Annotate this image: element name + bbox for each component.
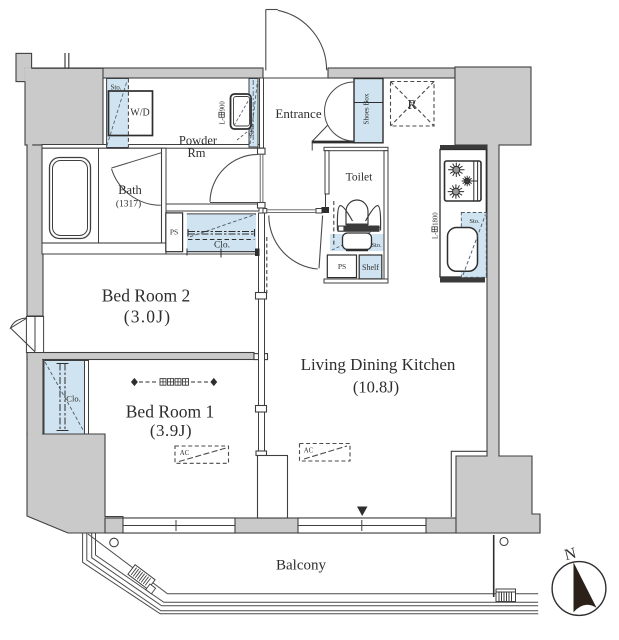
svg-text:AC: AC xyxy=(304,448,314,455)
svg-text:Entrance: Entrance xyxy=(275,106,321,121)
svg-text:1800: 1800 xyxy=(432,212,439,226)
svg-text:L-: L- xyxy=(432,232,439,239)
svg-text:Shelf: Shelf xyxy=(362,263,379,272)
svg-text:L-: L- xyxy=(219,117,226,124)
svg-text:Sto.: Sto. xyxy=(110,84,121,92)
svg-text:(3.0J): (3.0J) xyxy=(124,307,172,327)
svg-text:900: 900 xyxy=(219,101,226,112)
svg-text:Shoes Box: Shoes Box xyxy=(363,93,371,124)
svg-text:Clo.: Clo. xyxy=(214,240,230,250)
svg-text:(3.9J): (3.9J) xyxy=(150,421,192,440)
svg-text:PS: PS xyxy=(338,262,346,271)
svg-text:Balcony: Balcony xyxy=(276,558,326,574)
svg-text:Rm: Rm xyxy=(187,146,205,160)
svg-text:Sto.: Sto. xyxy=(469,218,480,225)
svg-text:(1317): (1317) xyxy=(116,198,141,209)
svg-text:Bed Room 1: Bed Room 1 xyxy=(126,402,214,422)
svg-text:Living Dining Kitchen: Living Dining Kitchen xyxy=(301,355,456,374)
svg-text:Bed Room 2: Bed Room 2 xyxy=(102,286,190,306)
svg-text:Clo.: Clo. xyxy=(66,394,80,404)
svg-text:Sto.: Sto. xyxy=(371,242,382,249)
svg-text:Sto.: Sto. xyxy=(249,125,256,136)
svg-text:AC: AC xyxy=(180,450,190,457)
svg-text:W/D: W/D xyxy=(130,108,149,119)
svg-text:Toilet: Toilet xyxy=(346,172,373,184)
svg-text:PS: PS xyxy=(170,228,178,237)
svg-text:Bath: Bath xyxy=(118,183,142,197)
svg-text:N: N xyxy=(563,545,579,564)
svg-text:R: R xyxy=(407,97,416,112)
svg-text:(10.8J): (10.8J) xyxy=(353,378,399,397)
